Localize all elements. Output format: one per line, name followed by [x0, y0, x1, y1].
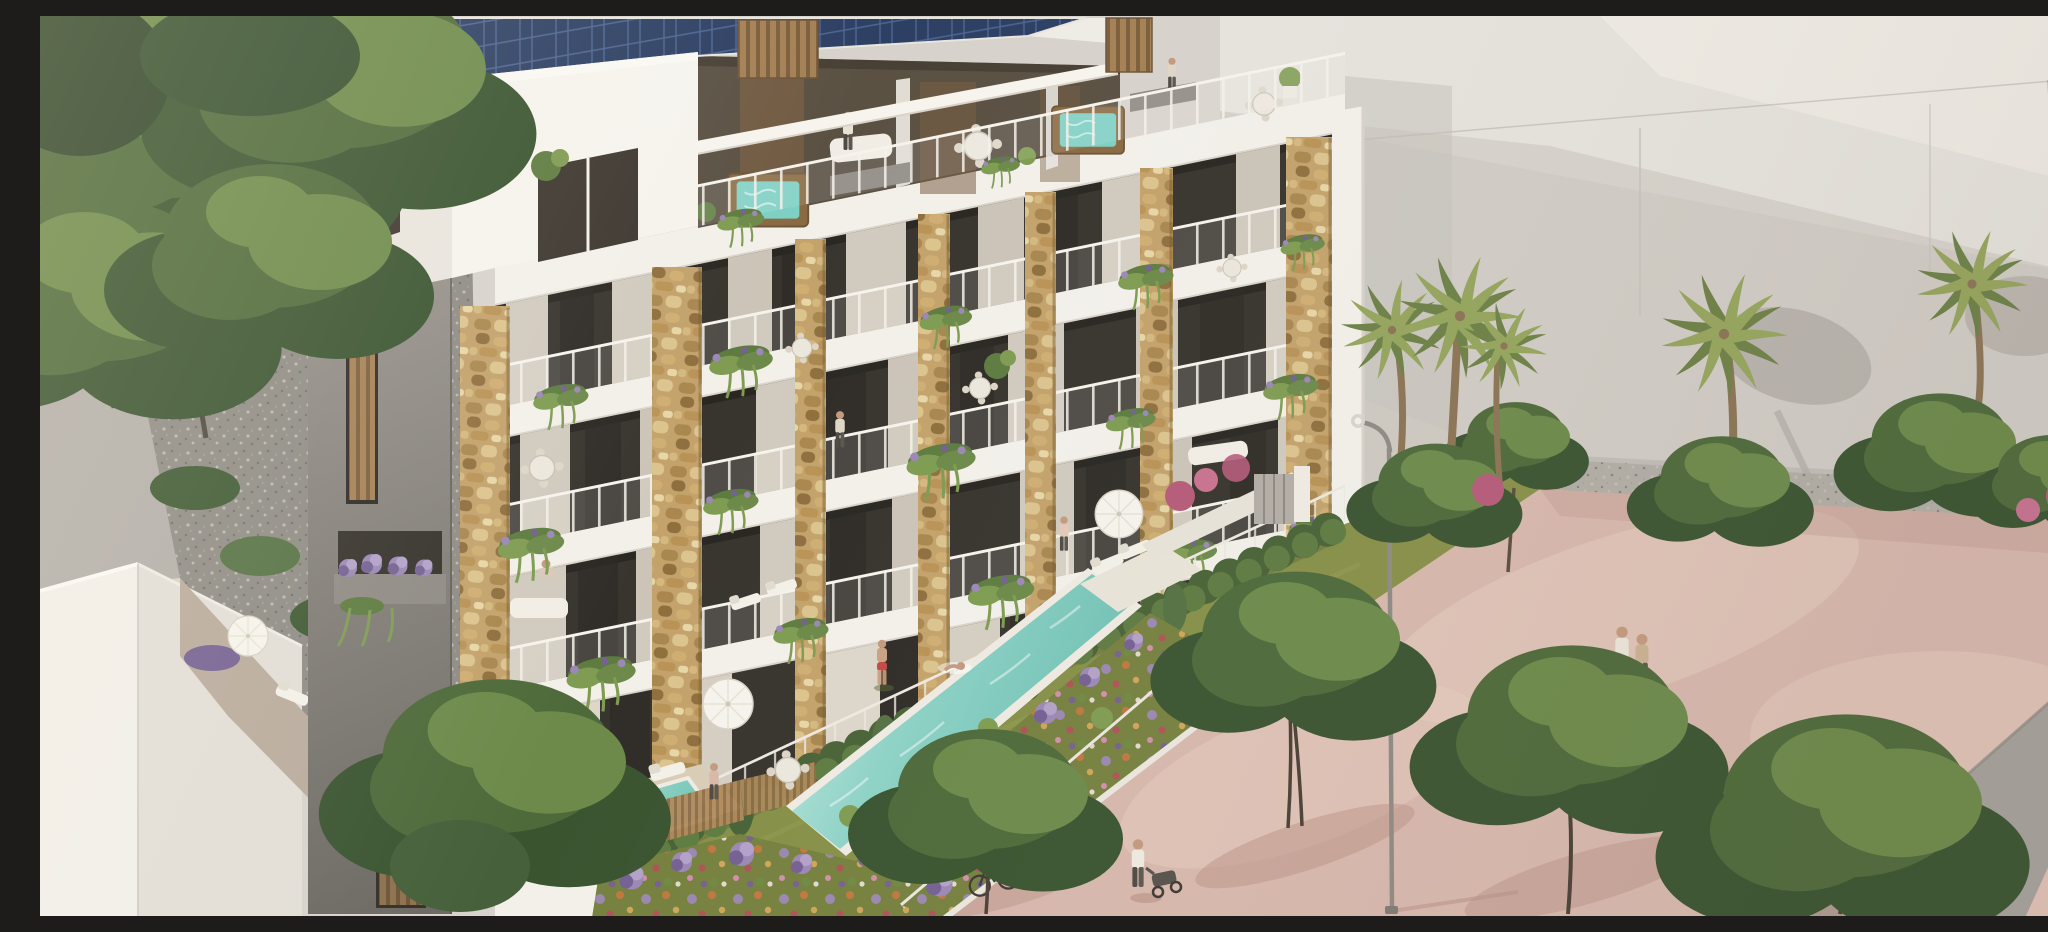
architectural-render: Aerial architectural rendering of a mode…	[40, 16, 2048, 916]
light-overlay	[40, 16, 2048, 916]
